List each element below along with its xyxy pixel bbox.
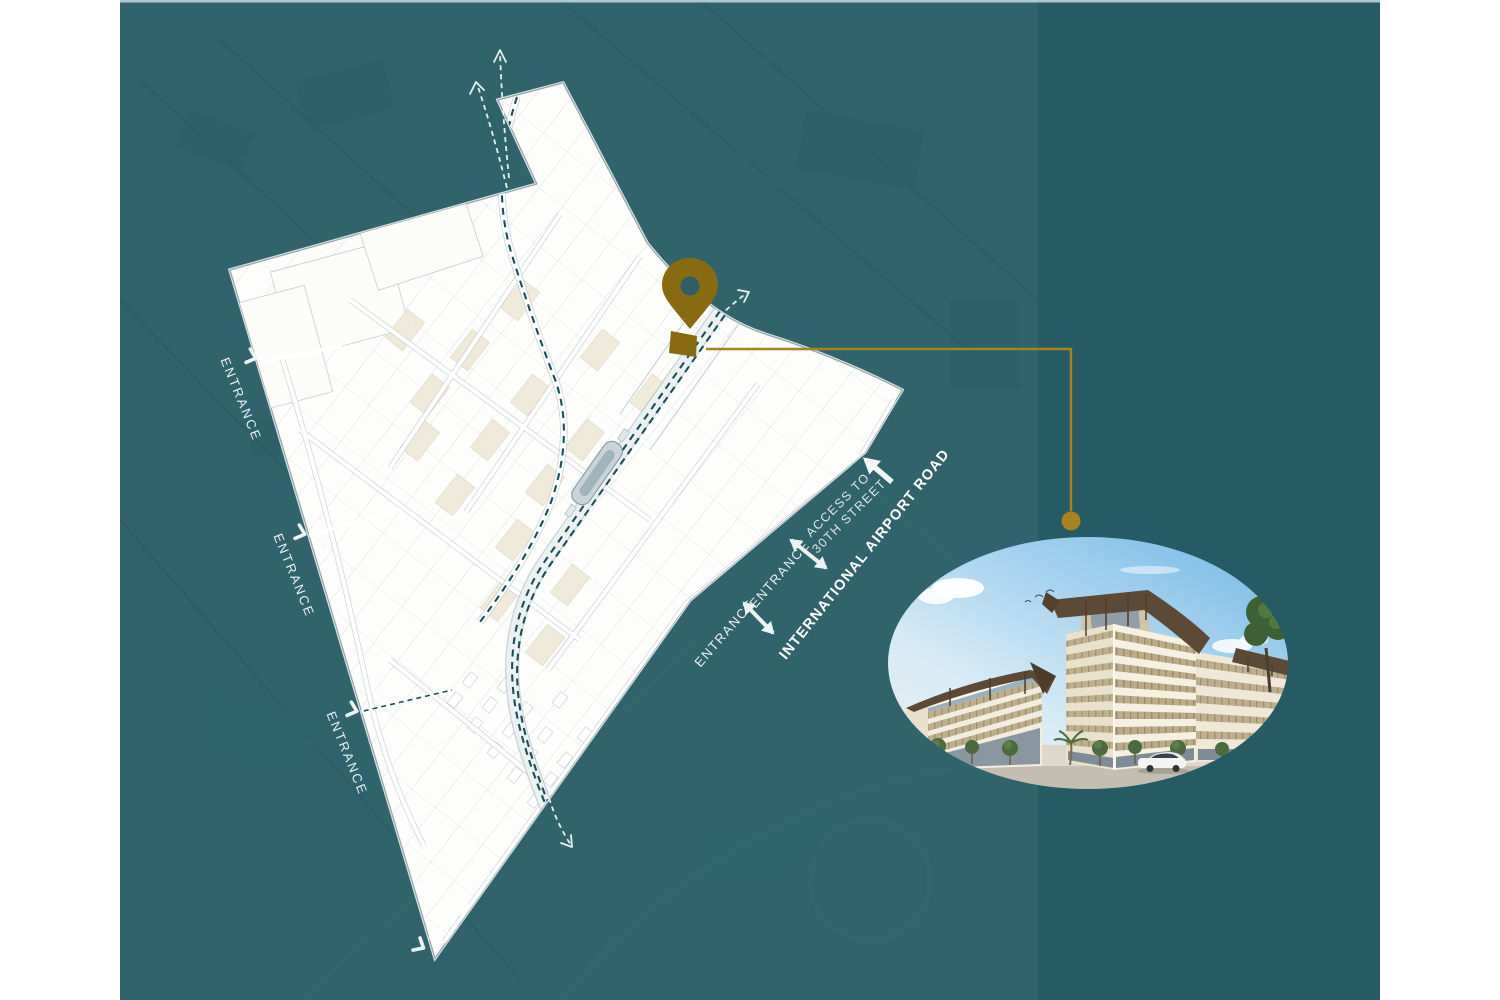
canvas-top-border xyxy=(120,0,1380,3)
masterplan-location-slide: ENTRANCE ENTRANCE ENTRANCE ENTRANCE ENTR… xyxy=(0,0,1500,1000)
location-map-graphic: ENTRANCE ENTRANCE ENTRANCE ENTRANCE ENTR… xyxy=(0,0,1500,1000)
connector-dot xyxy=(1062,512,1081,531)
render-main-tower xyxy=(1042,590,1210,770)
